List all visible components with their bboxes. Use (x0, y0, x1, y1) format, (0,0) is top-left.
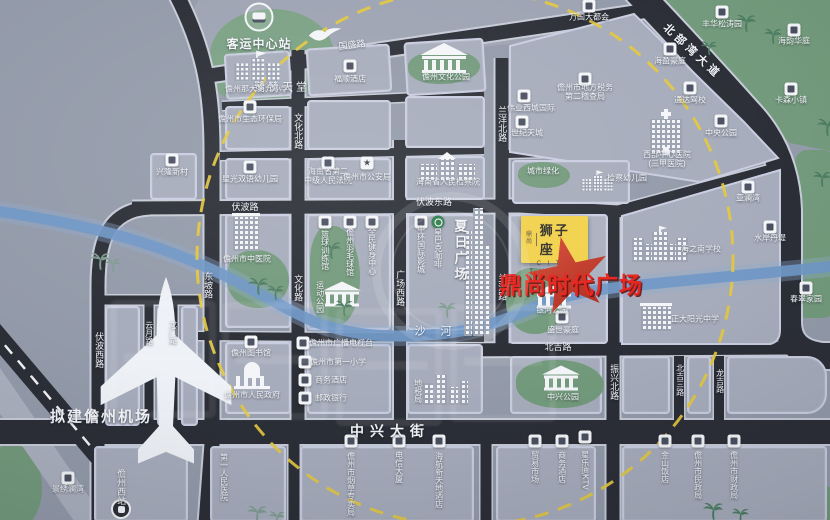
label-trade-market: 贸易市场 (530, 451, 539, 483)
label-tobacco-bureau: 儋州市烟草专卖局 (346, 452, 355, 516)
label-guosheng-road: 国盛路 (338, 38, 366, 52)
label-zhenxing-north-road: 振兴北路 (609, 364, 619, 400)
location-map-board: ★ 鹭鸶天堂拟建儋州机场客运中心站国盛路北部湾大道文化北路文化路兰洋北路兰洋路伏… (0, 0, 830, 520)
label-fubo-road: 伏波路 (231, 202, 258, 212)
badge-prefix: 鼎尚 (526, 232, 533, 245)
label-xingledi-ktv: 星乐迪KTV (580, 450, 589, 490)
label-wenhua-road: 文化路 (293, 275, 303, 302)
label-fenghua-songtao-garden: 丰华松涛园 (702, 19, 742, 28)
label-business-hotel-south: 商务酒店 (557, 451, 566, 483)
label-weiye-west-city: 伟业西城国际 (507, 103, 555, 112)
city-throne-badge: 鼎尚 狮子座 C I T Y T H R O N E (521, 216, 588, 263)
label-procuratorate: 海南省人民检察院 (416, 177, 480, 186)
label-century-sky-city: 世纪天城 (511, 128, 543, 137)
label-starlight-kindergarten: 星光双语幼儿园 (222, 174, 278, 183)
label-eco-environment-bureau: 儋州市生态环保局 (218, 114, 282, 123)
watermark-glyph (336, 308, 442, 426)
label-haizhinan-school: 海之南学校 (681, 244, 721, 253)
label-jinshan-hotel: 金山饭店 (660, 451, 669, 483)
label-civil-affairs-bureau: 儋州市民政局 (693, 451, 702, 499)
label-tax-bureau-no2: 儋州市地方税务第二稽查局 (557, 83, 613, 101)
label-xinglong-village: 兴隆新村 (156, 167, 188, 176)
watermark-glyph (222, 302, 328, 420)
label-urban-greening: 城市绿化 (527, 166, 559, 175)
label-west-central-hospital: 西部中心医院(三甲医院) (643, 150, 691, 168)
label-zhengda-sunshine-school: 正大阳光中学 (671, 314, 719, 323)
label-driving-school: 通达驾校 (674, 95, 706, 104)
badge-divider (536, 233, 537, 246)
label-wanguo-metropolis: 万国大都会 (569, 12, 609, 21)
label-danzhou-culture-park: 儋州文化公园 (422, 72, 470, 81)
label-haiying-mansion: 海盈豪庭 (654, 56, 686, 65)
label-public-security-bureau: 儋州市公安局 (343, 172, 391, 181)
label-basketball-gym: 篮球训练馆 (320, 230, 329, 270)
label-fushun-hotel: 福顺酒店 (334, 74, 366, 83)
label-first-peoples-hospital: 第一人民医院 (219, 453, 228, 501)
label-jiancha-kindergarten: 检察幼儿园 (607, 173, 647, 182)
label-dongpo-road: 东坡路 (203, 272, 213, 299)
label-haiyun-huating: 海韵华庭 (778, 36, 810, 45)
label-central-park: 中央公园 (705, 128, 737, 137)
label-tcm-hospital: 儋州市中医院 (223, 254, 271, 263)
watermark-glyph (110, 300, 216, 418)
label-no9-primary-school: 儋州那大第九小学 (225, 84, 289, 93)
label-fubo-west-road: 伏波西路 (94, 332, 104, 368)
label-longji-road: 龙吉路 (715, 369, 724, 393)
label-finance-bureau: 儋州市财政局 (729, 451, 738, 499)
label-danzhou-west-station: 儋州西站 (116, 469, 126, 505)
label-bus-center-station: 客运中心站 (226, 38, 291, 52)
label-kasen-town: 卡森小镇 (775, 95, 807, 104)
watermark-glyph (450, 304, 556, 422)
label-telecom-tower: 电信大厦 (394, 451, 403, 483)
label-chuncui-garden: 春翠家园 (790, 294, 822, 303)
label-yalanwan: 亚澜湾 (736, 193, 760, 202)
label-badminton-gym: 儋州羽毛球馆 (345, 228, 354, 276)
label-hna-new-world-hotel: 海航新天地酒店 (434, 452, 443, 508)
label-wenhua-north-road: 文化北路 (293, 113, 303, 149)
label-shuian-danti: 水岸丹堤 (754, 233, 786, 242)
label-lanyang-north-road: 兰洋北路 (497, 106, 507, 142)
label-jingxiu-lanwan: 景绣澜湾 (52, 484, 84, 493)
label-beiji-3rd-road: 北吉三路 (675, 364, 684, 396)
label-beibuwan-avenue: 北部湾大道 (660, 22, 723, 82)
